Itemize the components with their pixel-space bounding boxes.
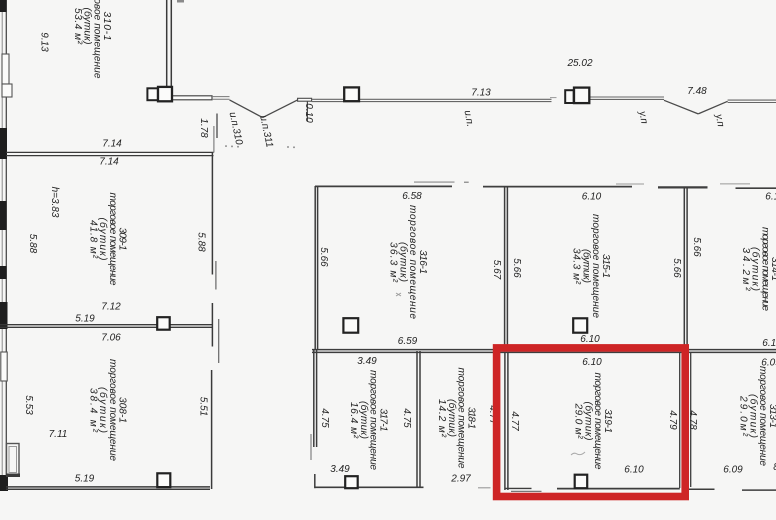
svg-text:7.06: 7.06 bbox=[101, 333, 121, 344]
svg-text:25.02: 25.02 bbox=[566, 58, 592, 69]
svg-text:6.10: 6.10 bbox=[624, 465, 644, 476]
svg-text:29.0 м²: 29.0 м² bbox=[573, 403, 584, 440]
svg-text:5.19: 5.19 bbox=[75, 314, 95, 325]
svg-text:7.13: 7.13 bbox=[471, 88, 491, 99]
svg-text:5.66: 5.66 bbox=[671, 258, 682, 278]
svg-text:14.2 м²: 14.2 м² bbox=[436, 399, 447, 438]
svg-text:5.19: 5.19 bbox=[75, 474, 95, 485]
svg-text:4.75: 4.75 bbox=[319, 408, 330, 428]
svg-text:53.4 м²: 53.4 м² bbox=[72, 8, 83, 45]
svg-text:7.14: 7.14 bbox=[102, 139, 122, 150]
svg-text:6.10: 6.10 bbox=[765, 192, 776, 203]
svg-text:38.4 м²: 38.4 м² bbox=[87, 388, 98, 433]
svg-text:4.77: 4.77 bbox=[509, 411, 520, 431]
svg-text:29.0м²: 29.0м² bbox=[738, 395, 749, 437]
svg-text:5.88: 5.88 bbox=[196, 232, 207, 252]
svg-text:6.10: 6.10 bbox=[582, 192, 602, 203]
svg-text:41.8 м²: 41.8 м² bbox=[87, 220, 98, 259]
svg-text:34.3 м²: 34.3 м² bbox=[571, 248, 582, 285]
svg-text:4.78: 4.78 bbox=[687, 410, 698, 430]
svg-text:4.75: 4.75 bbox=[401, 408, 412, 428]
svg-text:5.88: 5.88 bbox=[27, 234, 38, 254]
svg-text:36.3 м²: 36.3 м² bbox=[388, 242, 399, 283]
svg-text:5.53: 5.53 bbox=[23, 395, 34, 415]
svg-text:7.14: 7.14 bbox=[99, 157, 119, 168]
svg-text:9.13: 9.13 bbox=[39, 32, 50, 52]
svg-text:7.11: 7.11 bbox=[49, 429, 68, 440]
svg-text:5.51: 5.51 bbox=[198, 397, 209, 416]
svg-text:0.10: 0.10 bbox=[303, 103, 314, 123]
svg-text:7.12: 7.12 bbox=[101, 302, 121, 313]
svg-text:1.78: 1.78 bbox=[198, 118, 209, 138]
svg-text:3.49: 3.49 bbox=[330, 464, 350, 475]
svg-text:5.66: 5.66 bbox=[318, 247, 329, 267]
svg-text:5.66: 5.66 bbox=[511, 258, 522, 278]
svg-text:6.59: 6.59 bbox=[398, 336, 418, 347]
svg-text:5.67: 5.67 bbox=[491, 260, 502, 280]
svg-text:3.49: 3.49 bbox=[357, 356, 377, 367]
svg-text:6.10: 6.10 bbox=[582, 357, 602, 368]
svg-text:5.66: 5.66 bbox=[691, 237, 702, 257]
svg-text:6.10: 6.10 bbox=[580, 334, 600, 345]
svg-text:2.97: 2.97 bbox=[450, 474, 471, 485]
svg-text:h=3.83: h=3.83 bbox=[49, 187, 60, 218]
svg-text:7.48: 7.48 bbox=[687, 86, 707, 97]
svg-text:6.09: 6.09 bbox=[723, 465, 743, 476]
svg-text:6.10: 6.10 bbox=[762, 338, 776, 349]
svg-text:16.4 м²: 16.4 м² bbox=[348, 402, 359, 439]
svg-text:4.79: 4.79 bbox=[667, 410, 678, 430]
svg-text:6.58: 6.58 bbox=[402, 191, 422, 202]
